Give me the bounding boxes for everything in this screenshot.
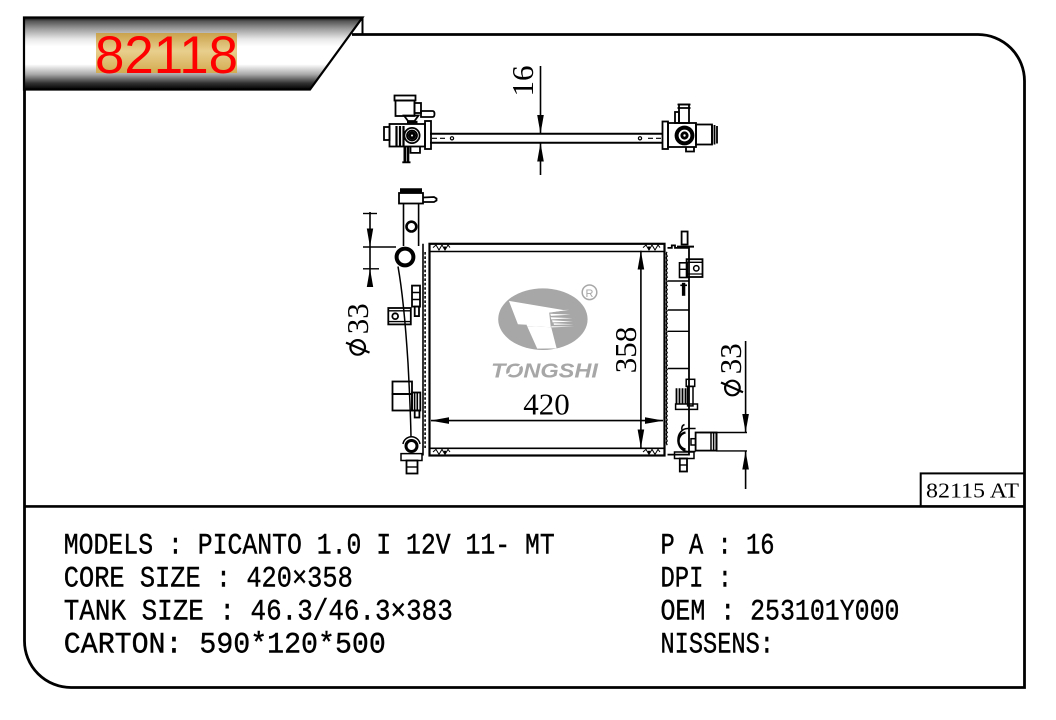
svg-text:16: 16	[505, 66, 540, 97]
svg-text:420: 420	[523, 387, 570, 422]
svg-text:R: R	[586, 288, 594, 300]
svg-text:OEM : 253101Y000: OEM : 253101Y000	[661, 595, 900, 629]
svg-text:TONGSHI: TONGSHI	[491, 360, 599, 383]
svg-text:CARTON: 590*120*500: CARTON: 590*120*500	[64, 628, 386, 662]
svg-text:33: 33	[713, 343, 748, 374]
svg-text:NISSENS:: NISSENS:	[661, 628, 775, 662]
svg-text:33: 33	[340, 303, 375, 334]
svg-text:TANK SIZE : 46.3/46.3×383: TANK SIZE : 46.3/46.3×383	[64, 595, 453, 629]
svg-text:CORE SIZE : 420×358: CORE SIZE : 420×358	[64, 562, 353, 596]
svg-text:P A : 16: P A : 16	[661, 529, 775, 563]
svg-text:82118: 82118	[95, 26, 238, 85]
svg-text:82115 AT: 82115 AT	[926, 479, 1019, 503]
svg-text:MODELS : PICANTO 1.0 I 12V 11-: MODELS : PICANTO 1.0 I 12V 11- MT	[64, 529, 555, 563]
svg-text:DPI :: DPI :	[661, 562, 733, 596]
svg-text:358: 358	[608, 327, 643, 374]
